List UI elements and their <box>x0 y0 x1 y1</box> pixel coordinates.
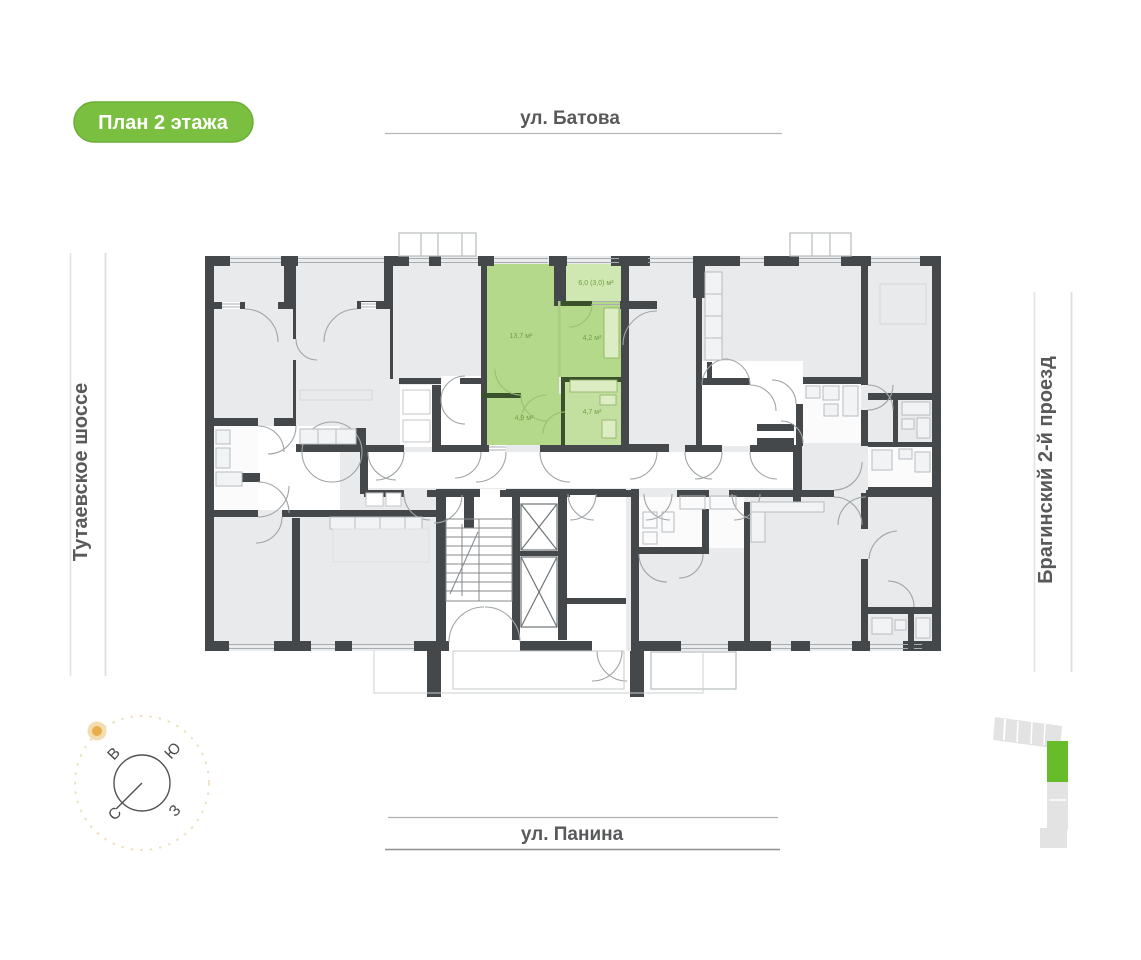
svg-text:13,7 м²: 13,7 м² <box>510 333 533 340</box>
svg-text:4,7 м²: 4,7 м² <box>583 409 602 416</box>
svg-text:4,2 м²: 4,2 м² <box>583 335 602 342</box>
svg-text:4,9 м²: 4,9 м² <box>515 415 534 422</box>
svg-text:ул. Батова: ул. Батова <box>520 108 620 129</box>
svg-text:Брагинский 2-й проезд: Брагинский 2-й проезд <box>1035 356 1057 584</box>
svg-text:Тутаевское шоссе: Тутаевское шоссе <box>70 383 92 561</box>
svg-text:6,0 (3,0) м²: 6,0 (3,0) м² <box>578 280 614 287</box>
svg-text:План 2 этажа: План 2 этажа <box>98 112 229 134</box>
svg-text:ул. Панина: ул. Панина <box>521 824 624 845</box>
